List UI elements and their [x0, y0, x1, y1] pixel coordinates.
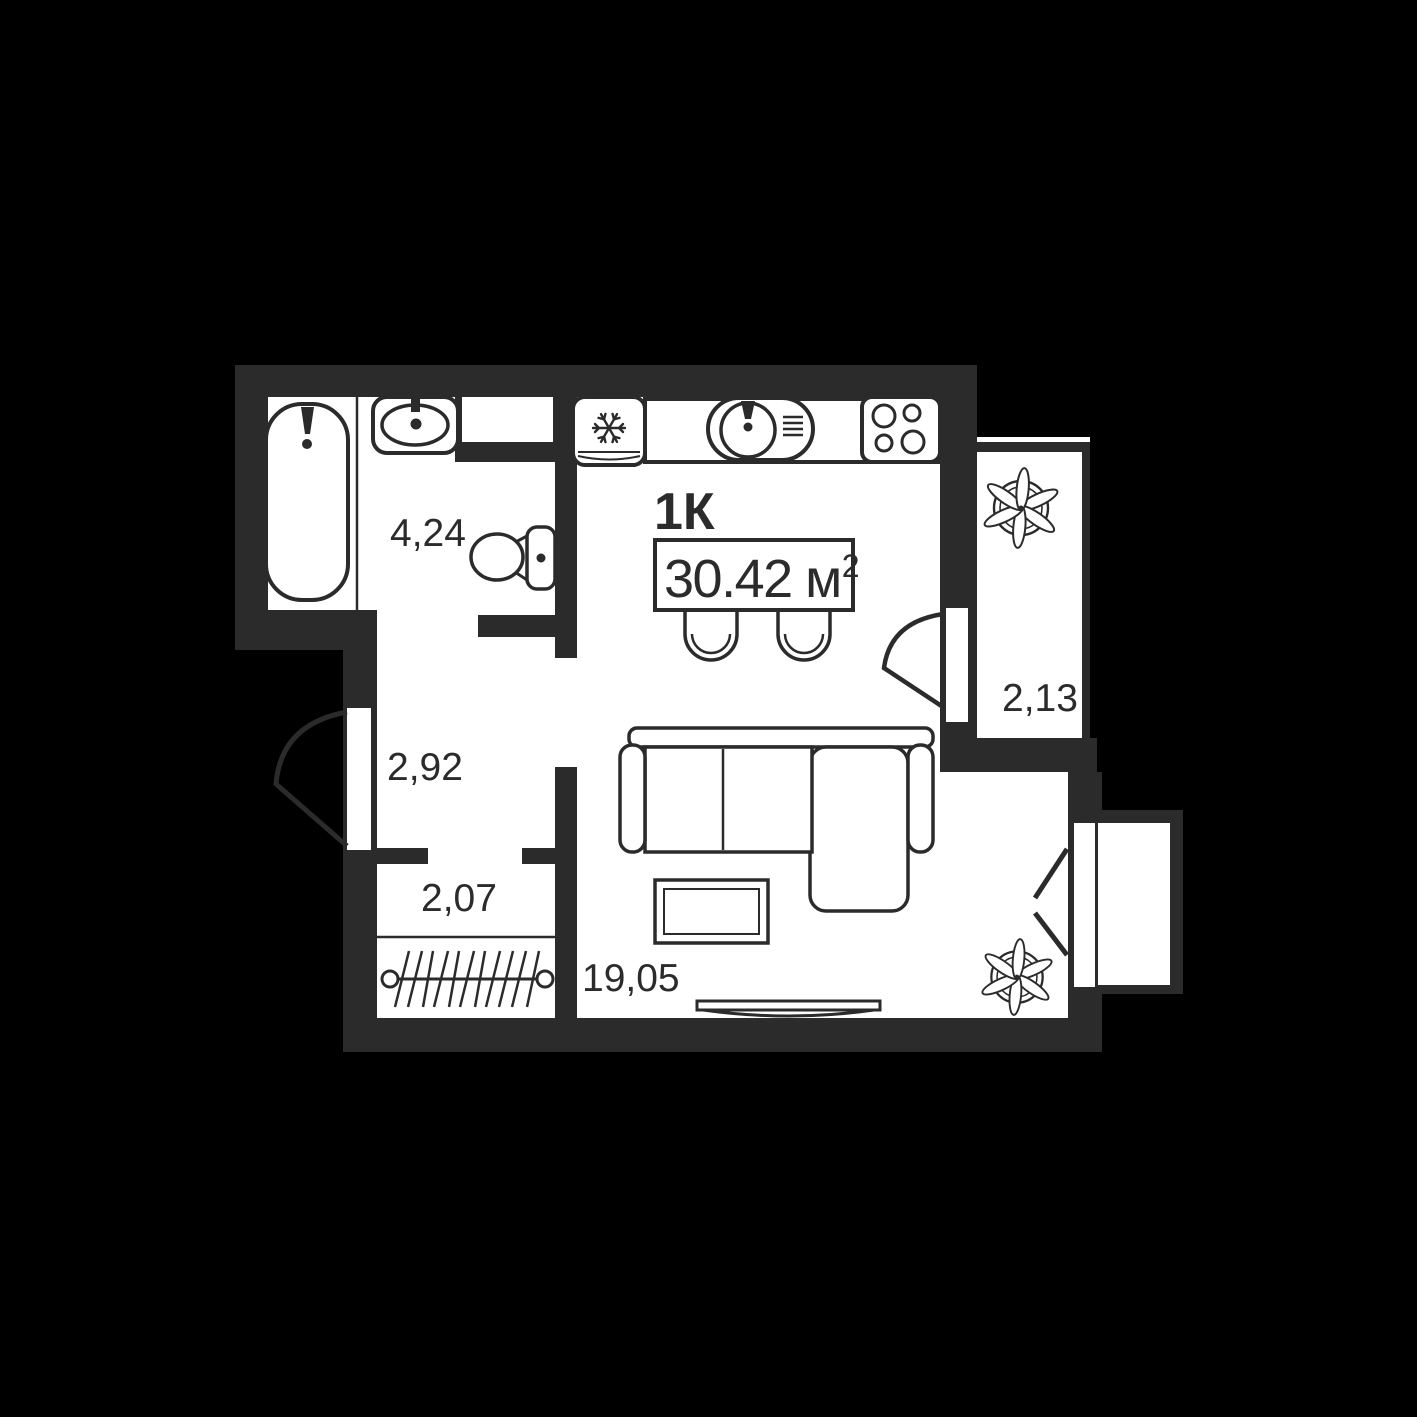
kitchen-sink-icon — [708, 398, 813, 460]
outer-windowsill — [1098, 823, 1170, 985]
balcony-door-leaf — [946, 608, 968, 722]
stove-icon — [862, 397, 940, 462]
floor-hallway-wardrobe — [377, 610, 555, 1018]
total-area-label: 30.42 м2 — [664, 548, 858, 610]
entrance-door-swing — [276, 712, 347, 846]
bathtub-icon — [266, 404, 348, 600]
balcony-glazing-line — [975, 437, 1090, 442]
window-leaf — [1074, 823, 1095, 987]
total-area-superscript: 2 — [842, 548, 858, 584]
bathroom-area-label: 4,24 — [390, 512, 466, 556]
bathroom-sink-icon — [373, 397, 458, 453]
hall-living-doorway — [555, 658, 577, 767]
entrance-door-leaf — [347, 708, 371, 850]
floorplan-svg — [0, 0, 1417, 1417]
fridge-icon — [573, 397, 645, 465]
bathroom-niche — [462, 397, 553, 442]
total-area-value: 30.42 — [664, 549, 792, 609]
wardrobe-area-label: 2,07 — [421, 877, 497, 921]
balcony-area-label: 2,13 — [1002, 677, 1078, 721]
apartment-type-label: 1К — [654, 482, 715, 542]
living-kitchen-area-label: 19,05 — [582, 957, 680, 1001]
floorplan-page: 1К 30.42 м2 4,24 2,92 2,07 19,05 2,13 — [0, 0, 1417, 1417]
total-area-unit: м — [805, 549, 841, 609]
hallway-area-label: 2,92 — [387, 746, 463, 790]
coffee-table — [655, 880, 768, 943]
